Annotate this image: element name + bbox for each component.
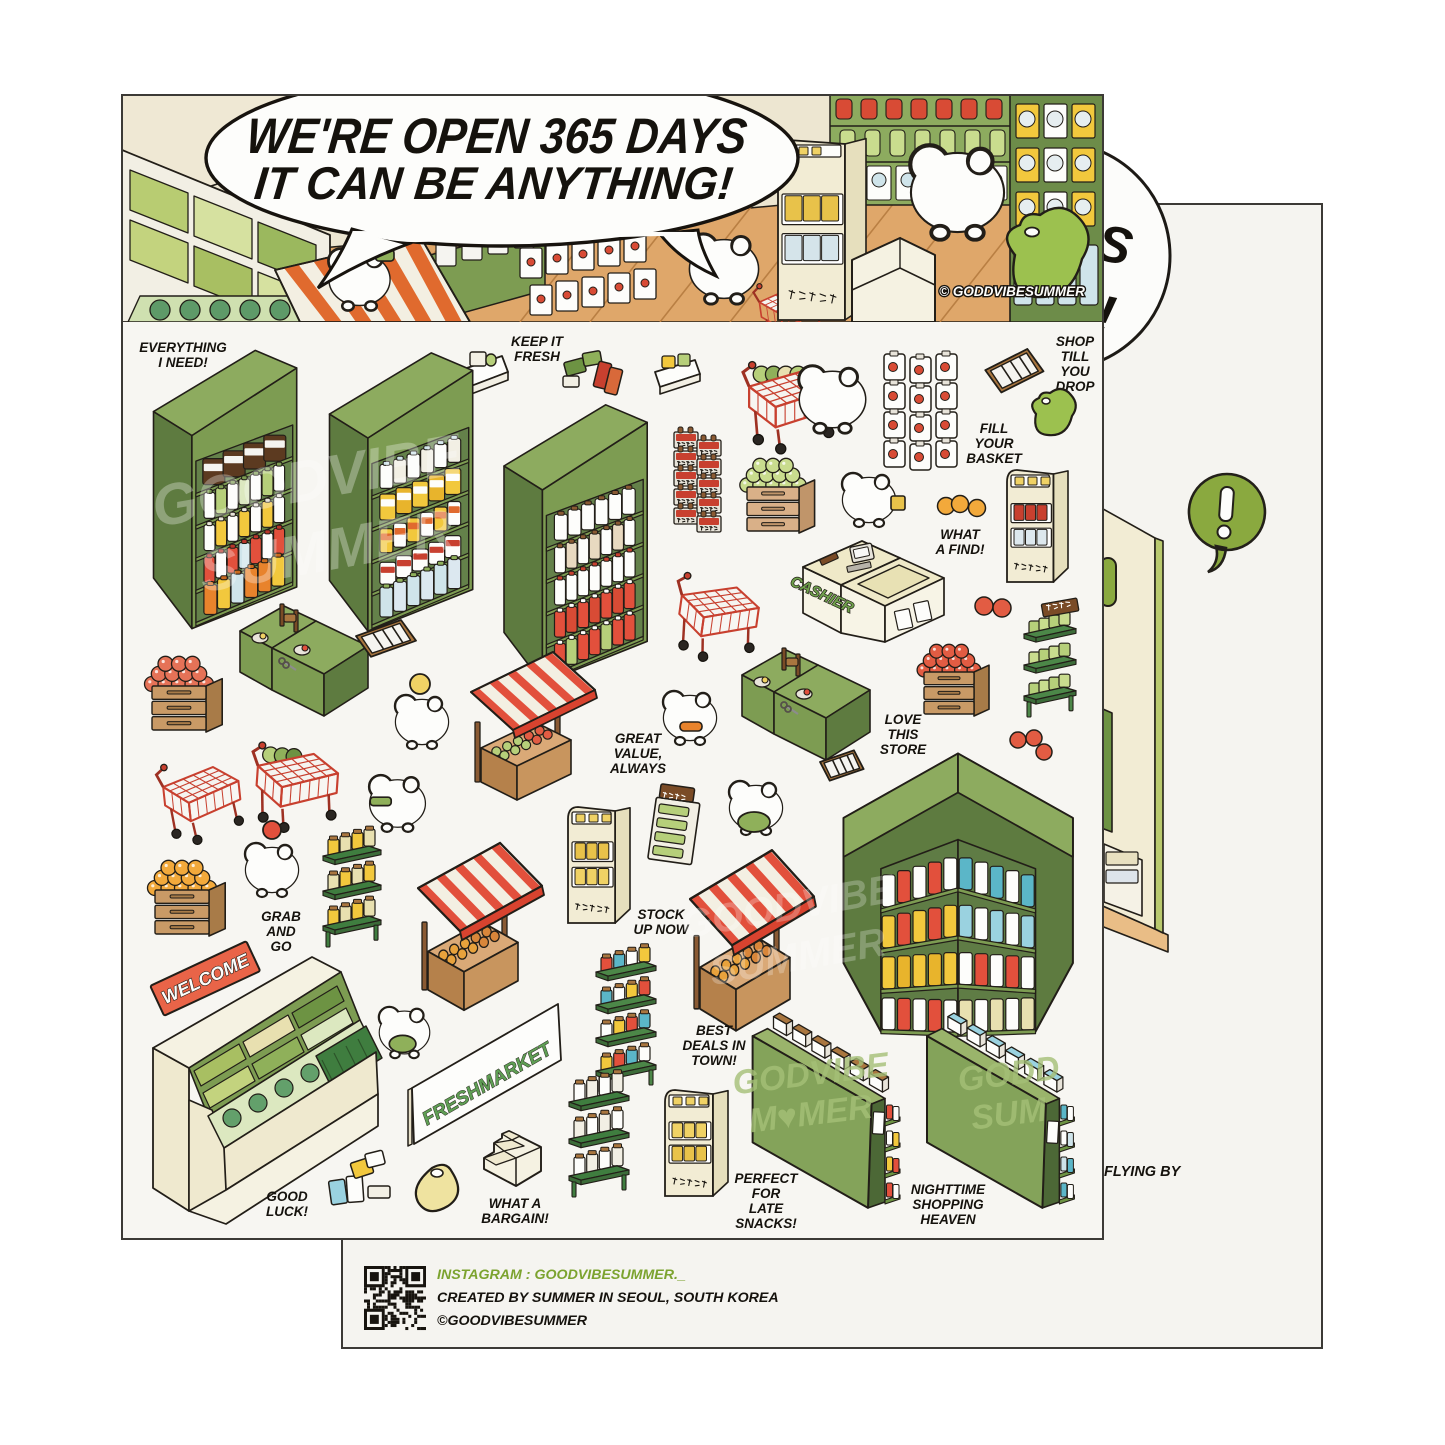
svg-text:LATE: LATE [749, 1201, 784, 1216]
svg-text:GO: GO [270, 939, 292, 954]
svg-text:YOU: YOU [1060, 364, 1091, 379]
svg-text:© GODDVIBESUMMER: © GODDVIBESUMMER [939, 284, 1085, 299]
svg-text:I NEED!: I NEED! [158, 355, 208, 370]
svg-text:CREATED BY SUMMER IN SEOUL, SO: CREATED BY SUMMER IN SEOUL, SOUTH KOREA [437, 1290, 779, 1306]
svg-text:GOOD: GOOD [266, 1189, 308, 1204]
svg-text:LOVE: LOVE [885, 712, 923, 727]
svg-text:STORE: STORE [880, 742, 927, 757]
svg-text:DEALS IN: DEALS IN [682, 1038, 745, 1053]
svg-text:BEST: BEST [696, 1023, 734, 1038]
svg-text:A FIND!: A FIND! [935, 542, 985, 557]
svg-text:FILL: FILL [980, 421, 1009, 436]
svg-text:WHAT A: WHAT A [489, 1196, 541, 1211]
svg-text:WE'RE OPEN 365 DAYS: WE'RE OPEN 365 DAYS [244, 108, 750, 164]
svg-text:GRAB: GRAB [261, 909, 301, 924]
svg-text:GREAT: GREAT [615, 731, 663, 746]
svg-text:SNACKS!: SNACKS! [735, 1216, 797, 1231]
svg-text:FRESH: FRESH [514, 349, 560, 364]
svg-text:THIS: THIS [888, 727, 919, 742]
svg-text:ALWAYS: ALWAYS [609, 761, 666, 776]
svg-text:KEEP IT: KEEP IT [511, 334, 565, 349]
svg-text:TILL: TILL [1061, 349, 1090, 364]
svg-text:EVERYTHING: EVERYTHING [139, 340, 227, 355]
svg-text:FLYING BY: FLYING BY [1104, 1164, 1182, 1180]
svg-text:VALUE,: VALUE, [614, 746, 663, 761]
svg-text:LUCK!: LUCK! [266, 1204, 308, 1219]
svg-text:BASKET: BASKET [966, 451, 1023, 466]
svg-text:BARGAIN!: BARGAIN! [481, 1211, 549, 1226]
svg-text:INSTAGRAM : GOODVIBESUMMER._: INSTAGRAM : GOODVIBESUMMER._ [437, 1267, 686, 1283]
svg-text:HEAVEN: HEAVEN [920, 1212, 976, 1227]
svg-text:FOR: FOR [752, 1186, 781, 1201]
svg-text:PERFECT: PERFECT [734, 1171, 799, 1186]
svg-text:IT CAN BE ANYTHING!: IT CAN BE ANYTHING! [252, 157, 735, 209]
svg-text:YOUR: YOUR [974, 436, 1013, 451]
svg-text:AND: AND [265, 924, 295, 939]
svg-text:NIGHTTIME: NIGHTTIME [911, 1182, 986, 1197]
svg-text:SHOPPING: SHOPPING [912, 1197, 984, 1212]
svg-text:©GOODVIBESUMMER: ©GOODVIBESUMMER [437, 1313, 588, 1329]
svg-text:SHOP: SHOP [1056, 334, 1095, 349]
svg-text:WHAT: WHAT [940, 527, 981, 542]
